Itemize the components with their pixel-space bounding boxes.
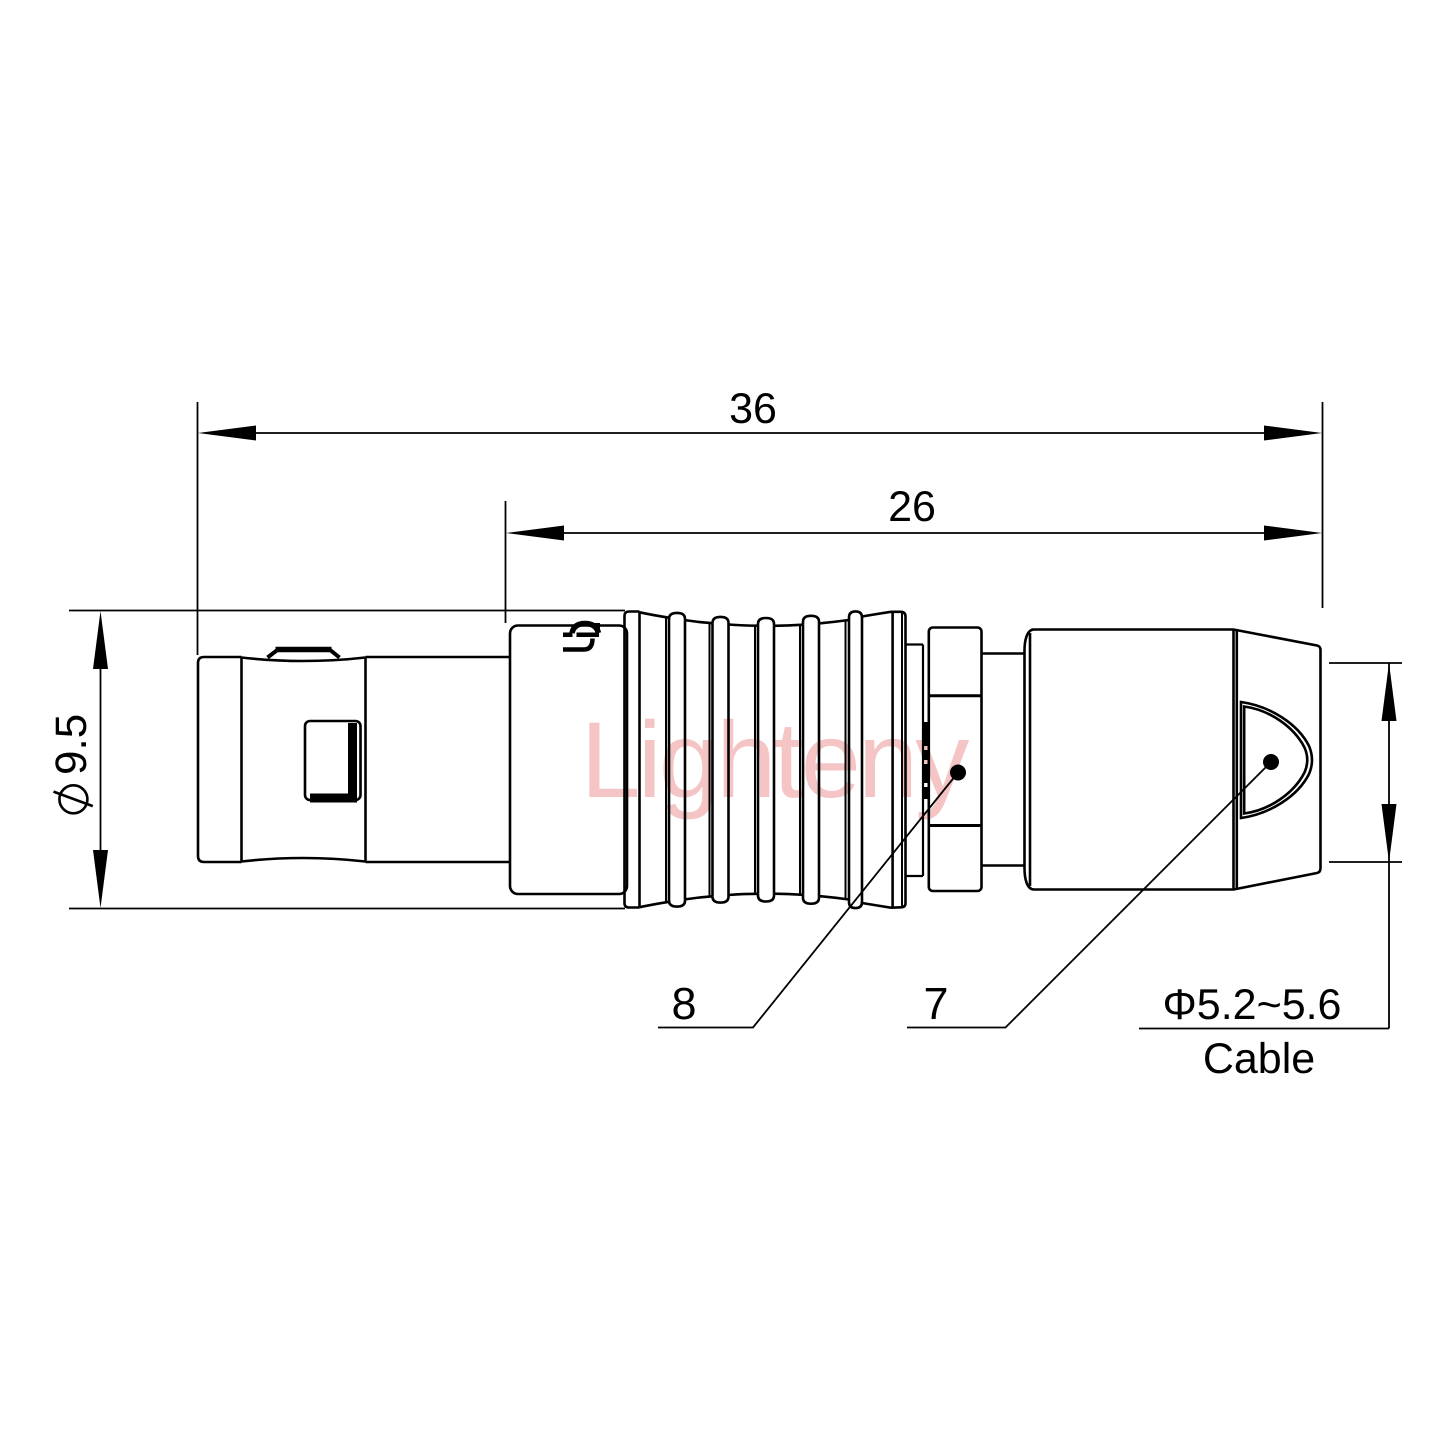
svg-text:9.5: 9.5 xyxy=(47,714,96,775)
svg-text:Φ5.2~5.6: Φ5.2~5.6 xyxy=(1163,981,1342,1029)
svg-text:26: 26 xyxy=(888,483,936,531)
svg-text:7: 7 xyxy=(923,978,948,1029)
svg-text:Cable: Cable xyxy=(1203,1035,1315,1083)
svg-text:36: 36 xyxy=(729,385,777,433)
svg-text:8: 8 xyxy=(671,978,696,1029)
